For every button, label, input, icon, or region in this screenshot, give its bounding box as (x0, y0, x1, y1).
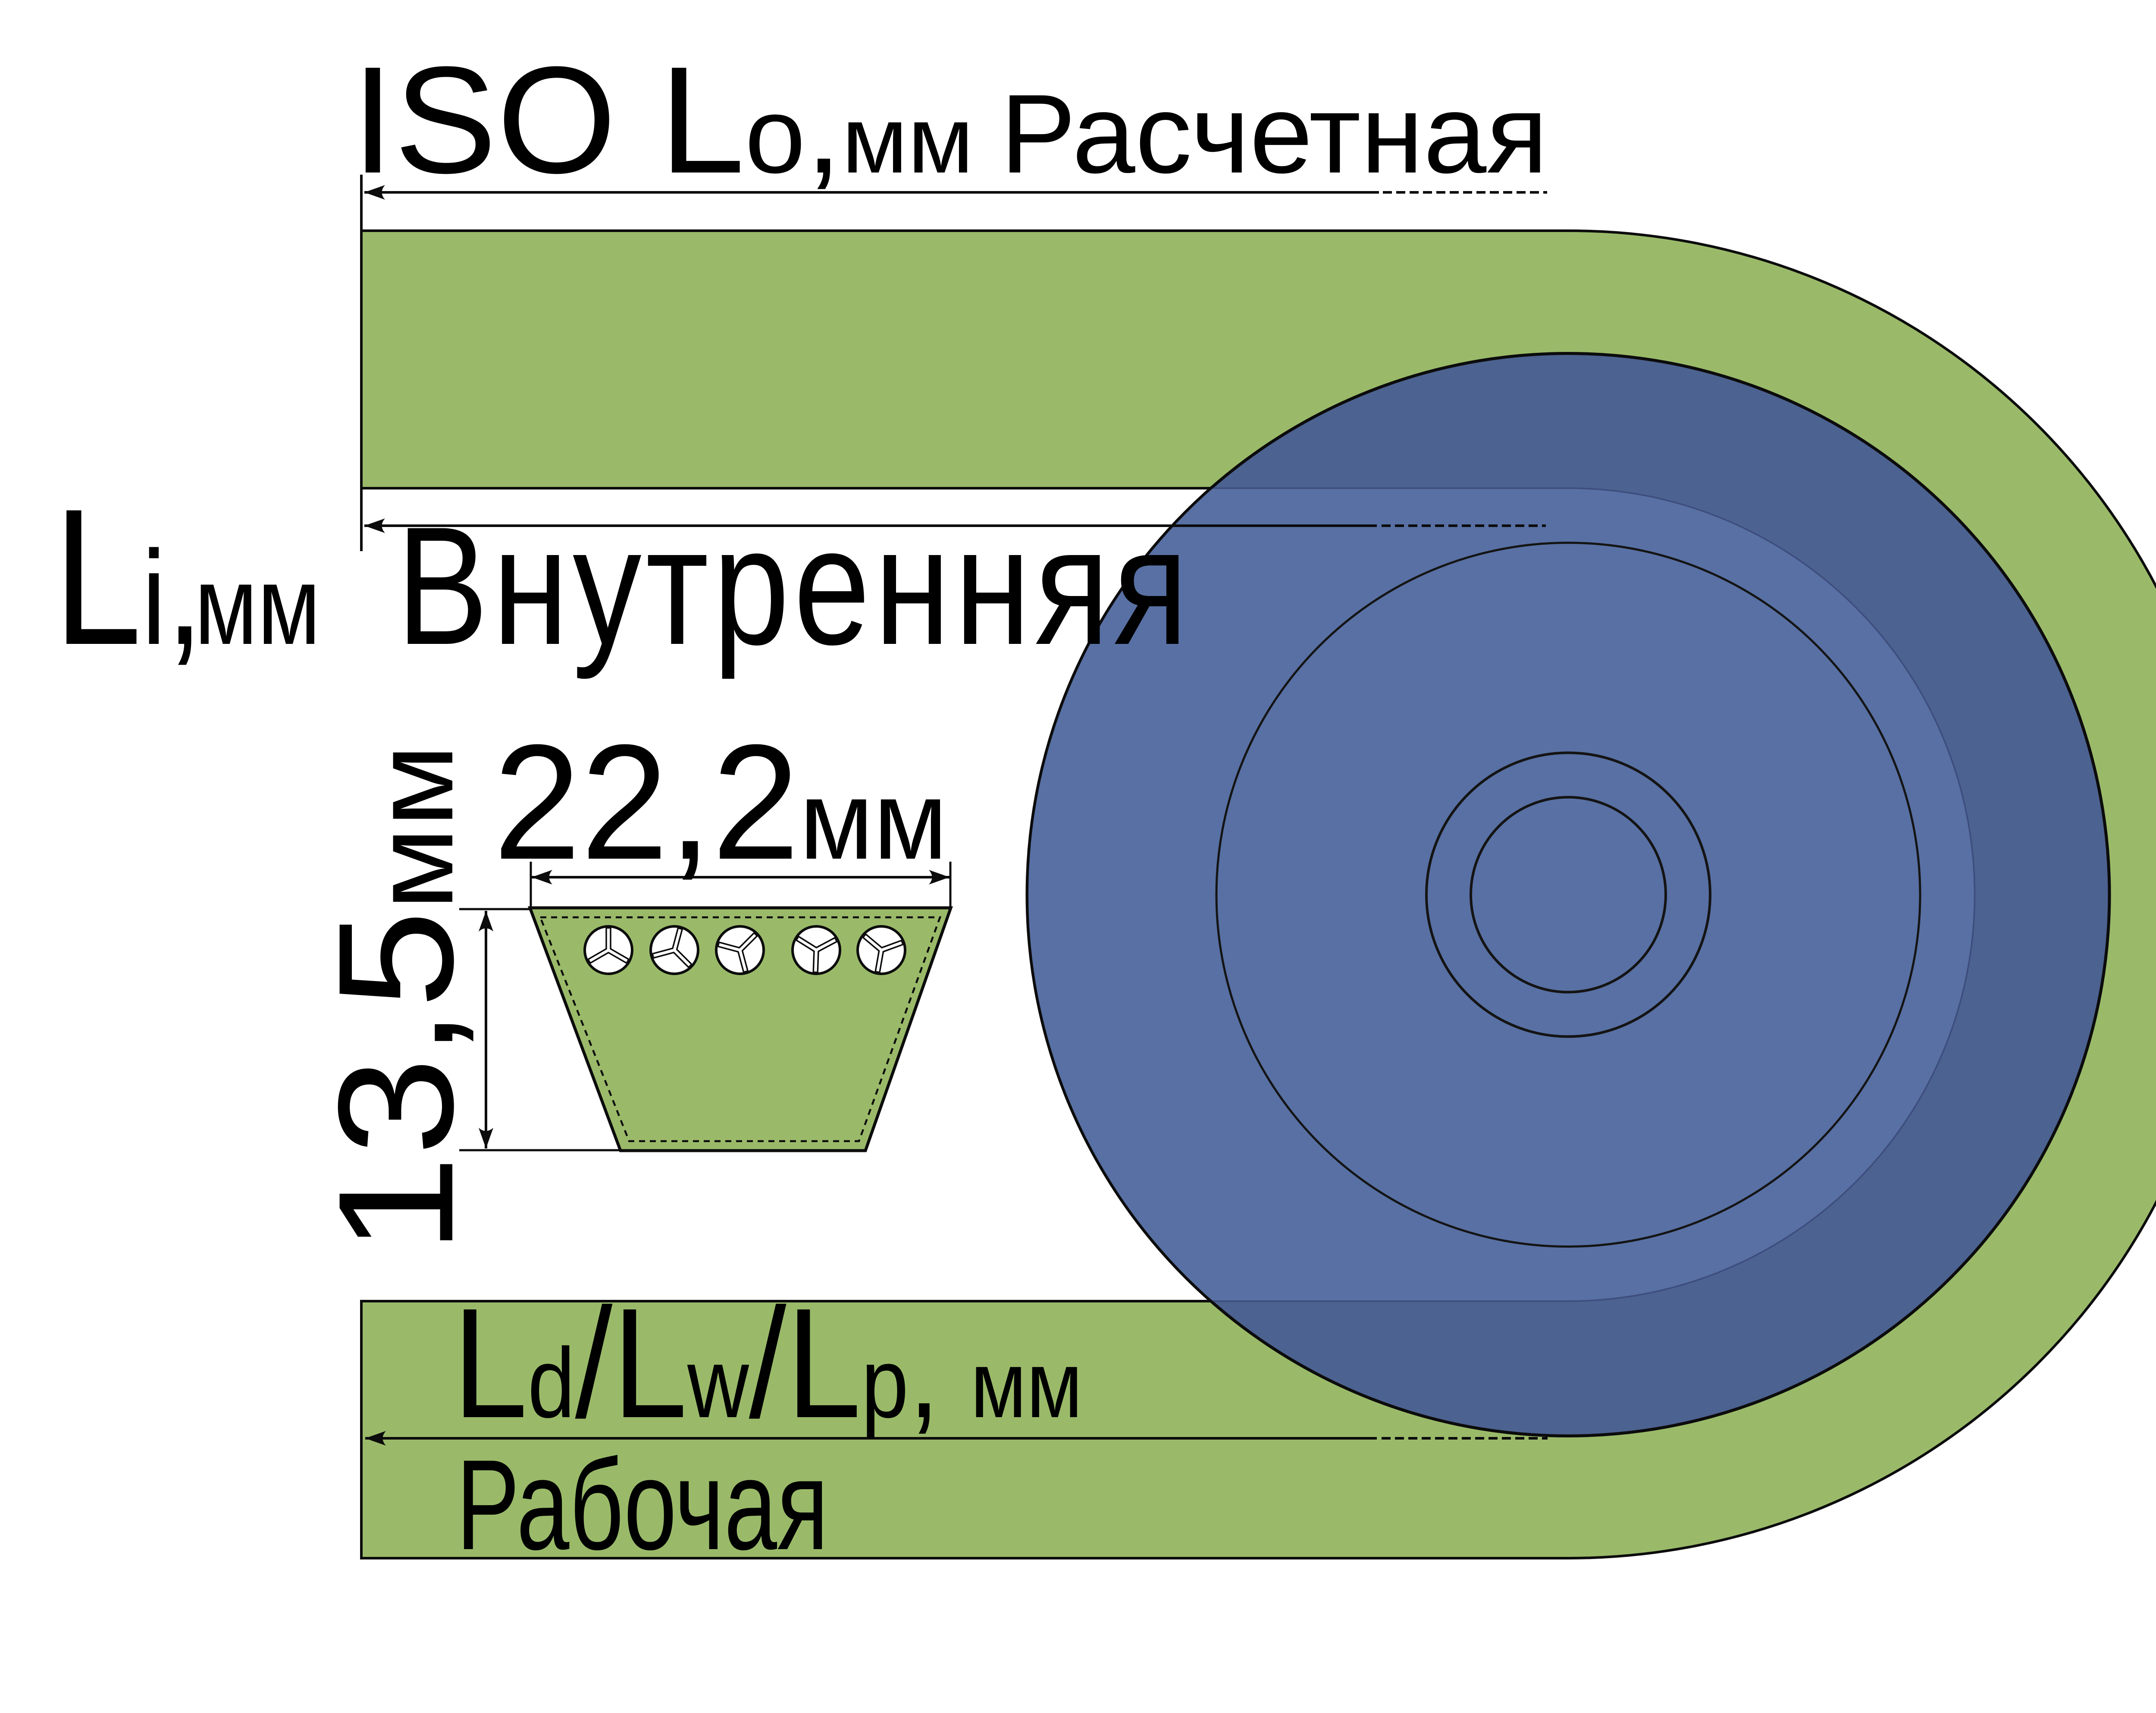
svg-text:Рабочая: Рабочая (456, 1433, 828, 1577)
